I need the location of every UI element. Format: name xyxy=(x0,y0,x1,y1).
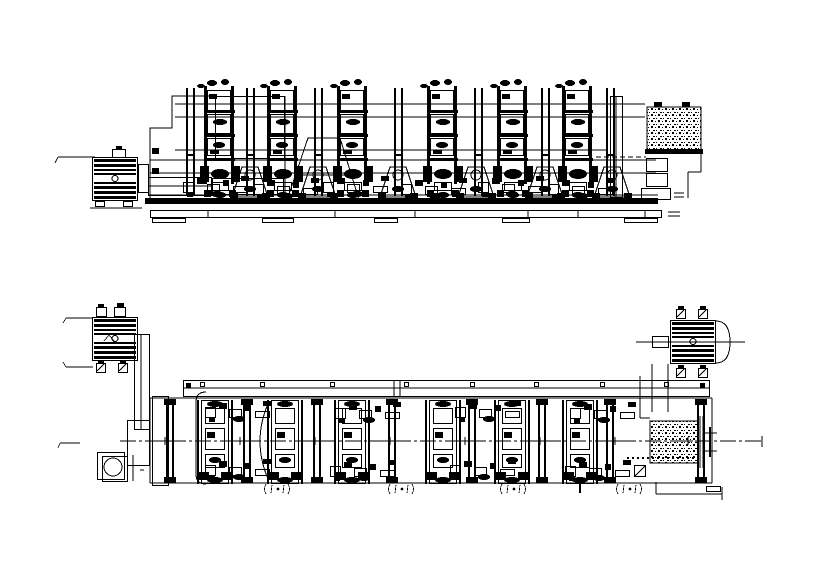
print-tower-4 xyxy=(420,79,463,198)
drive-column-base xyxy=(128,421,150,466)
section-mark xyxy=(501,484,526,494)
pump-circle xyxy=(104,458,122,476)
platform-grating-plan xyxy=(650,421,698,463)
unit-stack-5 xyxy=(494,400,530,484)
base-rail xyxy=(145,198,658,204)
motor-terminal-box xyxy=(113,150,126,158)
unit-stack-2 xyxy=(267,400,303,484)
drawing-sheet xyxy=(0,0,830,587)
elevation-view xyxy=(55,79,703,223)
motor-terminal-box xyxy=(115,308,126,317)
left-motor-assembly xyxy=(63,303,150,466)
end-station-curve xyxy=(260,404,268,479)
section-marks xyxy=(265,483,642,494)
section-mark xyxy=(389,484,414,494)
platform-grating xyxy=(647,107,701,150)
pump-circle-unit xyxy=(98,453,145,482)
section-mark xyxy=(265,484,290,494)
plan-body xyxy=(150,392,712,486)
foundation-foot xyxy=(375,219,398,223)
motor-foot xyxy=(96,202,105,207)
drive-motor-left xyxy=(93,318,138,361)
coupling xyxy=(139,165,149,193)
drive-motor xyxy=(93,158,138,201)
drive-column xyxy=(135,335,150,430)
motor-foot-pad xyxy=(677,306,686,319)
foundation-foot xyxy=(263,219,294,223)
foundation-foot xyxy=(503,219,530,223)
motor-foot-pad xyxy=(677,365,686,378)
foundation-platform xyxy=(151,211,662,218)
print-tower-6 xyxy=(555,79,598,198)
motor-terminal-box xyxy=(97,308,107,317)
base-assembly xyxy=(145,198,680,223)
cad-drawing xyxy=(0,0,830,587)
guard-rail-band xyxy=(183,380,710,397)
plan-view xyxy=(58,303,762,500)
motor-foot-pad xyxy=(699,306,708,319)
unit-stack-3 xyxy=(334,400,370,484)
centerline-plus-mark xyxy=(610,437,620,445)
section-mark xyxy=(617,484,642,494)
motor-foot-pad xyxy=(97,360,106,373)
right-platform-plan xyxy=(627,364,722,500)
foundation-foot xyxy=(153,219,186,223)
motor-foot xyxy=(124,202,133,207)
motor-foot-pad xyxy=(699,365,708,378)
motor-foot-pad xyxy=(119,360,128,373)
foundation-foot xyxy=(625,219,658,223)
right-platform xyxy=(596,96,703,200)
